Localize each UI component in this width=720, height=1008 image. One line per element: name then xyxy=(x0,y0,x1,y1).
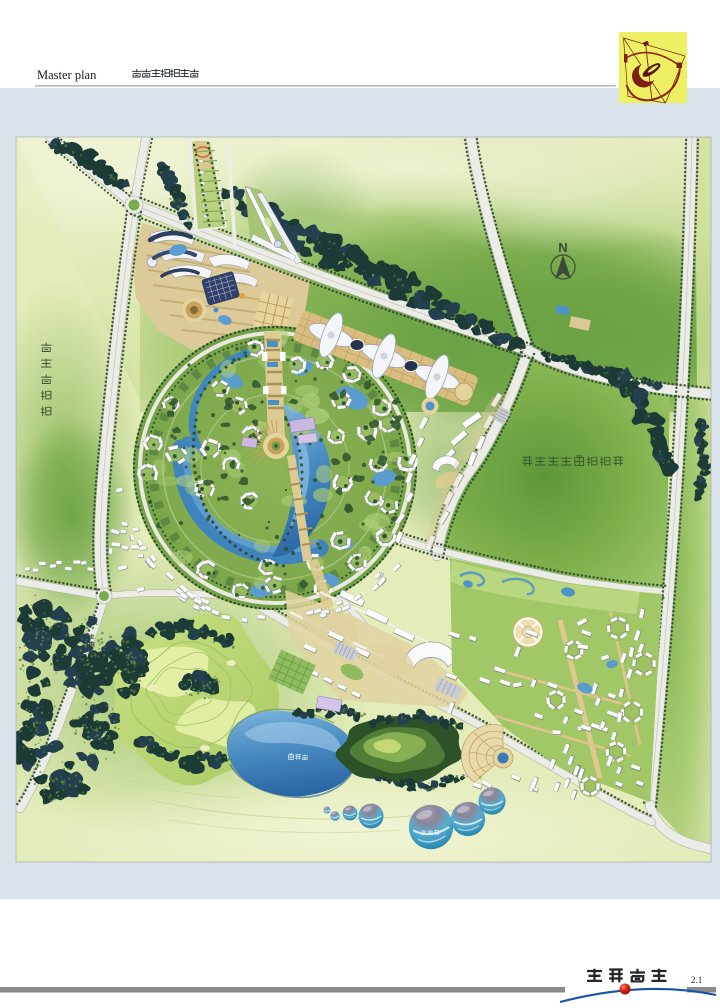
svg-text:N: N xyxy=(558,240,567,255)
svg-text:2.1: 2.1 xyxy=(691,975,702,985)
svg-text:Master plan: Master plan xyxy=(37,68,97,82)
